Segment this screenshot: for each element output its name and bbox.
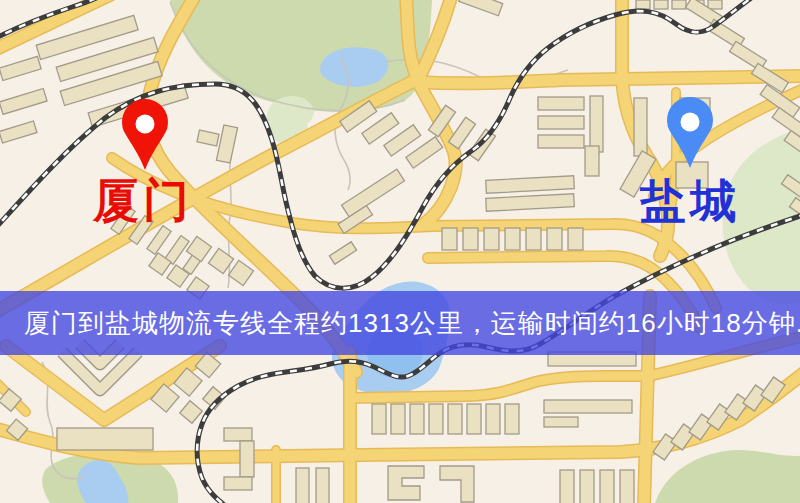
map-canvas[interactable]: 厦门 盐城 厦门到盐城物流专线全程约1313公里，运输时间约16小时18分钟.	[0, 0, 800, 503]
map-svg	[0, 0, 800, 503]
route-summary-text: 厦门到盐城物流专线全程约1313公里，运输时间约16小时18分钟.	[0, 291, 800, 355]
route-info-banner: 厦门到盐城物流专线全程约1313公里，运输时间约16小时18分钟.	[0, 291, 800, 355]
